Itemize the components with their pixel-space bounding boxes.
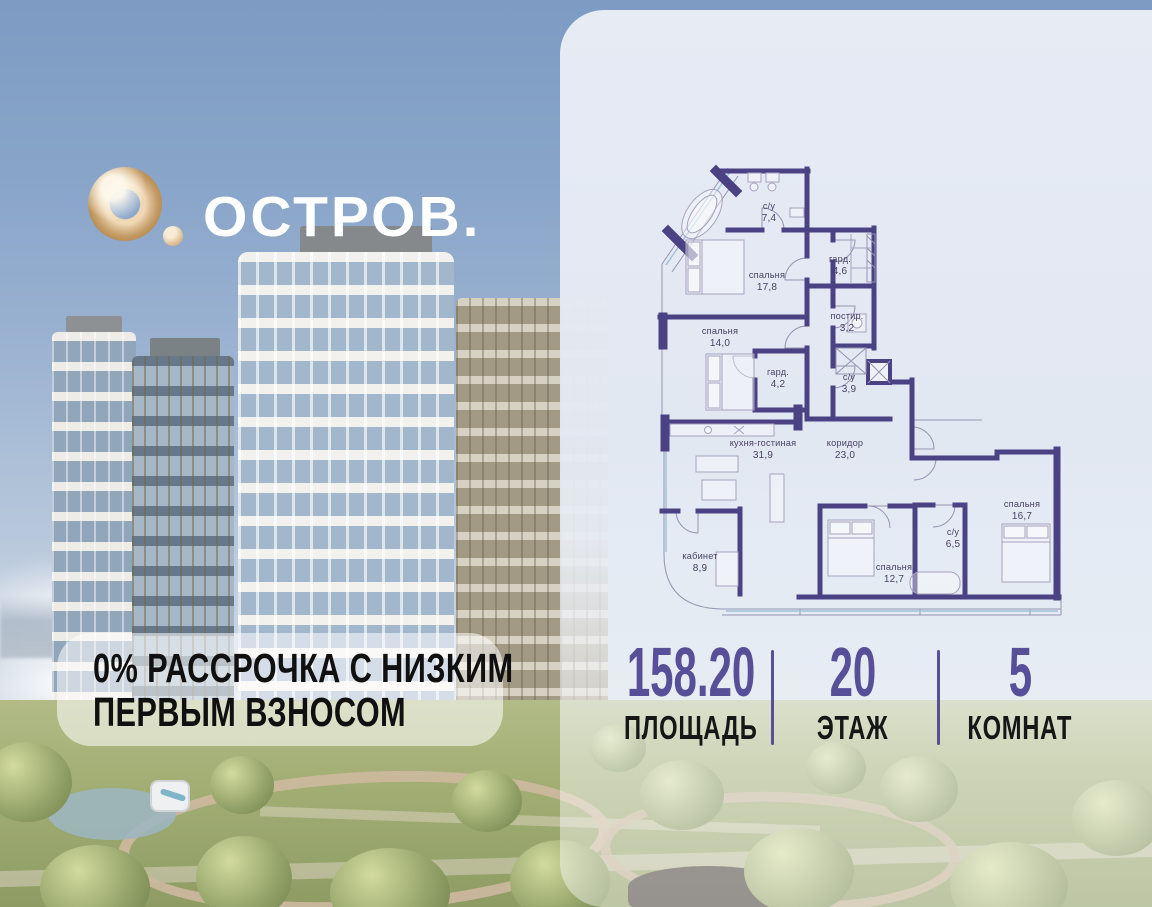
tree: [210, 756, 274, 814]
room-name: гард.: [829, 254, 851, 264]
building-roof: [150, 338, 220, 358]
area-label: ПЛОЩАДЬ: [624, 709, 758, 747]
room-name: с/у: [763, 201, 776, 211]
room-area: 23,0: [835, 450, 856, 461]
floor-label: ЭТАЖ: [817, 709, 888, 747]
floor-plan: с/у 7,4 спальня 17,8 гард. 4,6 постир. 3…: [650, 156, 1070, 621]
room-name: спальня: [1004, 499, 1040, 509]
room-area: 4,2: [771, 379, 786, 390]
brand-name: ОСТРОВ.: [203, 184, 482, 250]
promo-line-2: ПЕРВЫМ ВЗНОСОМ: [93, 690, 513, 734]
rooms-label: КОМНАТ: [968, 709, 1073, 747]
room-area: 31,9: [753, 450, 774, 461]
room-name: спальня: [702, 326, 738, 336]
room-name: спальня: [876, 562, 912, 572]
logo-dot-icon: [163, 226, 183, 246]
room-name: постир.: [830, 311, 863, 321]
room-area: 8,9: [693, 563, 708, 574]
room-area: 16,7: [1012, 511, 1033, 522]
logo-donut-icon: [88, 167, 162, 241]
rooms-value: 5: [1008, 643, 1031, 701]
room-name: спальня: [749, 270, 785, 280]
tree: [452, 770, 522, 832]
room-name: гард.: [767, 367, 789, 377]
room-area: 17,8: [757, 282, 778, 293]
room-area: 12,7: [884, 574, 905, 585]
room-name: коридор: [827, 438, 863, 448]
room-name: с/у: [843, 372, 856, 382]
floor-value: 20: [830, 643, 877, 701]
promo-line-1: 0% РАССРОЧКА С НИЗКИМ: [93, 646, 513, 690]
room-area: 3,9: [842, 384, 857, 395]
promo-banner: 0% РАССРОЧКА С НИЗКИМ ПЕРВЫМ ВЗНОСОМ: [57, 633, 503, 746]
stat-rooms: 5 КОМНАТ: [910, 643, 1130, 747]
room-area: 6,5: [946, 539, 961, 550]
room-area: 4,6: [833, 266, 848, 277]
furniture: [670, 173, 1050, 594]
room-name: кухня-гостиная: [730, 438, 797, 448]
area-value: 158.20: [627, 643, 755, 701]
room-area: 7,4: [762, 213, 777, 224]
ad-card: с/у 7,4 спальня 17,8 гард. 4,6 постир. 3…: [0, 0, 1152, 907]
room-area: 3,2: [840, 323, 855, 334]
room-name: с/у: [947, 527, 960, 537]
room-name: кабинет: [682, 551, 718, 561]
promo-text: 0% РАССРОЧКА С НИЗКИМ ПЕРВЫМ ВЗНОСОМ: [93, 646, 654, 734]
room-area: 14,0: [710, 338, 731, 349]
